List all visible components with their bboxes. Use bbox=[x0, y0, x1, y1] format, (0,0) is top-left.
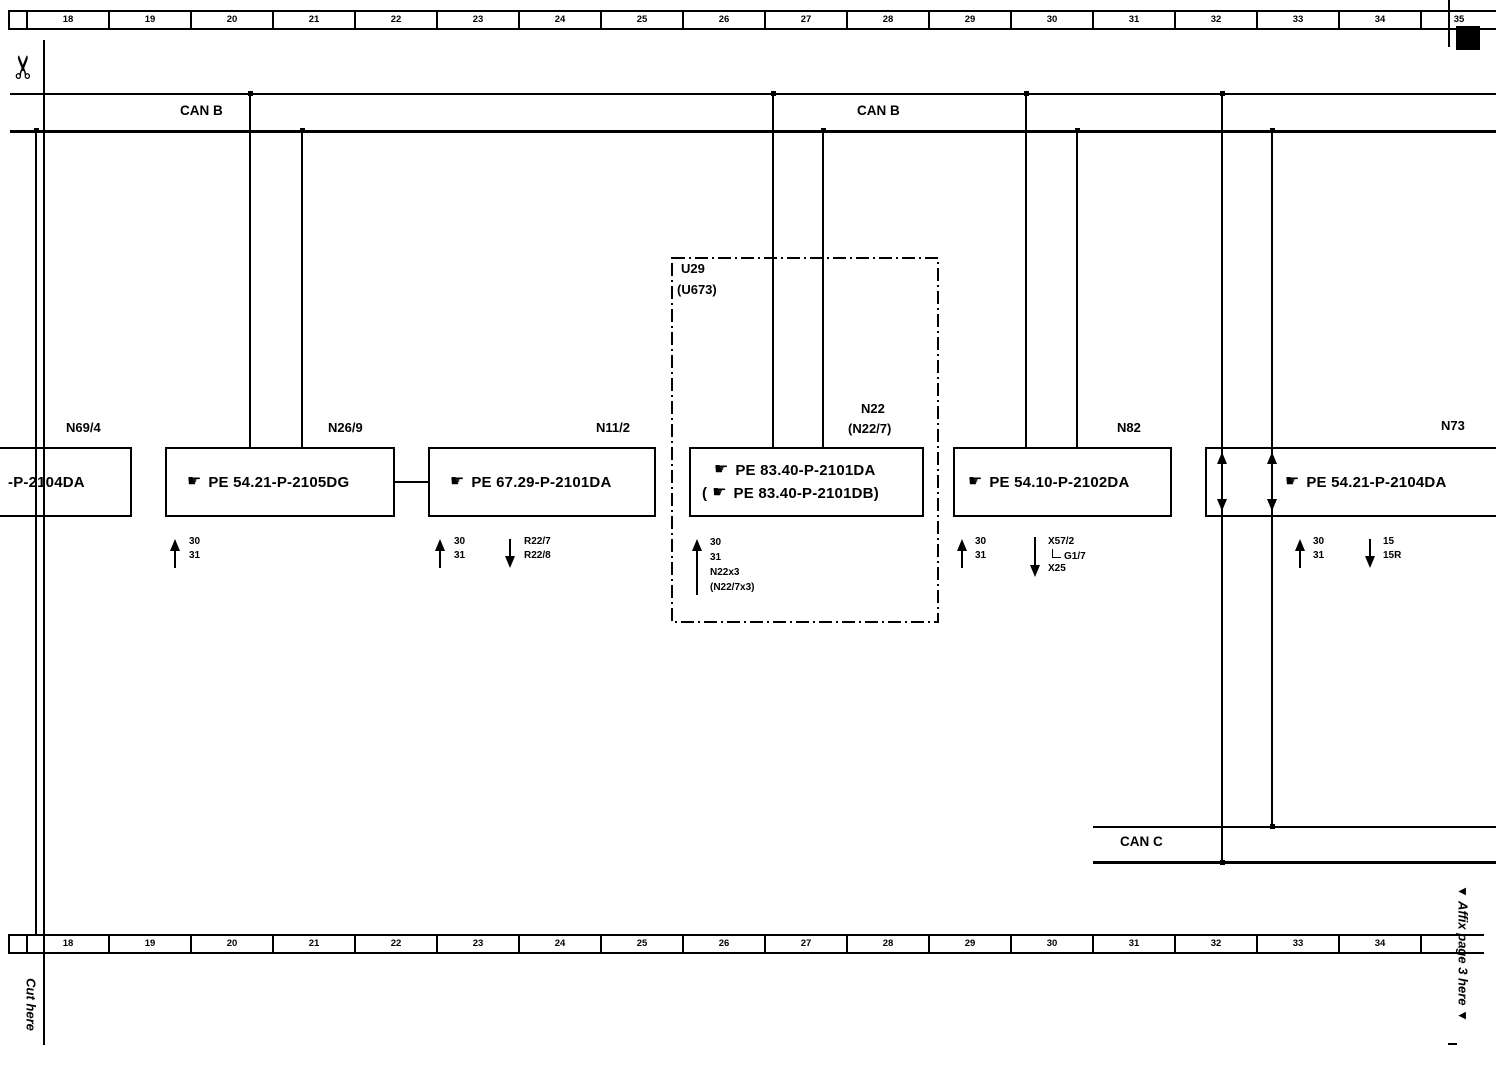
can-c-low-line bbox=[1093, 861, 1496, 864]
drop-n82-a bbox=[1025, 93, 1027, 447]
ruler-cell: 24 bbox=[518, 934, 600, 952]
cut-line bbox=[43, 40, 45, 1045]
scissors-icon: ✂ bbox=[4, 54, 42, 81]
n22-sublabel: (N22/7) bbox=[848, 421, 891, 436]
ruler-cell: 26 bbox=[682, 10, 764, 28]
ruler-cell: 19 bbox=[108, 934, 190, 952]
ruler-cell: 21 bbox=[272, 934, 354, 952]
n69-4-ref: -P-2104DA bbox=[8, 474, 85, 491]
junction-dot bbox=[771, 91, 776, 96]
drop-n26-9-b bbox=[301, 131, 303, 447]
ruler-cell: 22 bbox=[354, 10, 436, 28]
can-b-label-right: CAN B bbox=[857, 103, 900, 118]
power-arrow-shaft bbox=[696, 549, 698, 595]
n73-bus-arrow-up bbox=[1217, 452, 1227, 464]
u29-label: U29 bbox=[681, 261, 705, 276]
n73-bus-arrow-down bbox=[1267, 499, 1277, 511]
ruler-cell: 30 bbox=[1010, 10, 1092, 28]
power-labels-n82: 3031 bbox=[975, 535, 986, 563]
ruler-cell: 32 bbox=[1174, 934, 1256, 952]
hand-icon: ☛ bbox=[450, 471, 464, 491]
page-edge-mark-line bbox=[1448, 0, 1450, 47]
power-arrow-shaft bbox=[961, 549, 963, 568]
ruler-cell: 23 bbox=[436, 934, 518, 952]
ruler-cell: 18 bbox=[26, 934, 108, 952]
ruler-cell: 20 bbox=[190, 934, 272, 952]
signal-arrow-down bbox=[1030, 565, 1040, 577]
ruler-top-cells: 181920212223242526272829303132333435 bbox=[0, 10, 1496, 28]
ruler-cell: 31 bbox=[1092, 934, 1174, 952]
n11-2-ref[interactable]: PE 67.29-P-2101DA bbox=[471, 474, 611, 491]
power-arrow-shaft bbox=[1299, 549, 1301, 568]
affix-page-text: ▼ Affix page 3 here ▼ bbox=[1456, 864, 1471, 1044]
can-c-high-line bbox=[1093, 826, 1496, 828]
ruler-cell: 28 bbox=[846, 934, 928, 952]
ruler-cell: 21 bbox=[272, 10, 354, 28]
ruler-cell: 22 bbox=[354, 934, 436, 952]
bottom-right-tick bbox=[1448, 1043, 1457, 1045]
power-arrow-shaft bbox=[174, 549, 176, 568]
hand-icon: ☛ bbox=[187, 471, 201, 491]
drop-n82-b bbox=[1076, 131, 1078, 447]
n22-ref-1[interactable]: PE 83.40-P-2101DA bbox=[735, 459, 875, 482]
junction-dot bbox=[34, 128, 39, 133]
ruler-bottom-lower-line bbox=[8, 952, 1484, 954]
junction-dot bbox=[1220, 91, 1225, 96]
n73-box: ☛ PE 54.21-P-2104DA bbox=[1205, 447, 1496, 517]
n73-label: N73 bbox=[1441, 418, 1465, 433]
ruler-cell: 26 bbox=[682, 934, 764, 952]
signal-label-x57-2: X57/2 bbox=[1048, 535, 1074, 549]
can-b-high-line bbox=[10, 93, 1496, 95]
n22-box: ☛ PE 83.40-P-2101DA ( ☛ PE 83.40-P-2101D… bbox=[689, 447, 924, 517]
power-labels-n26-9: 3031 bbox=[189, 535, 200, 563]
drop-n69-4 bbox=[35, 131, 37, 935]
n73-bus-arrow-down bbox=[1217, 499, 1227, 511]
ruler-cell: 30 bbox=[1010, 934, 1092, 952]
n82-label: N82 bbox=[1117, 420, 1141, 435]
ruler-cell: 27 bbox=[764, 934, 846, 952]
power-labels-n22: 3031 N22x3(N22/7x3) bbox=[710, 535, 754, 595]
ruler-cell: 25 bbox=[600, 10, 682, 28]
ruler-top-lower-line bbox=[8, 28, 1496, 30]
ruler-cell: 24 bbox=[518, 10, 600, 28]
ruler-cell: 27 bbox=[764, 10, 846, 28]
n22-ref-2-paren: ( bbox=[702, 482, 707, 505]
cut-here-text: Cut here bbox=[24, 968, 39, 1042]
n11-2-box: ☛ PE 67.29-P-2101DA bbox=[428, 447, 656, 517]
ruler-cell: 23 bbox=[436, 10, 518, 28]
junction-dot bbox=[1270, 128, 1275, 133]
ruler-cell: 29 bbox=[928, 10, 1010, 28]
junction-dot bbox=[821, 128, 826, 133]
drop-n22-a bbox=[772, 93, 774, 447]
hand-icon: ☛ bbox=[714, 458, 728, 481]
wiring-diagram-page: 181920212223242526272829303132333435 ✂ C… bbox=[0, 0, 1496, 1072]
n69-4-box: -P-2104DA bbox=[0, 447, 132, 517]
signal-arrow-down bbox=[505, 556, 515, 568]
ruler-cell: 34 bbox=[1338, 934, 1420, 952]
n82-box: ☛ PE 54.10-P-2102DA bbox=[953, 447, 1172, 517]
n69-4-label: N69/4 bbox=[66, 420, 101, 435]
ruler-cell: 31 bbox=[1092, 10, 1174, 28]
signal-label-x25: X25 bbox=[1048, 562, 1066, 576]
n73-ref[interactable]: PE 54.21-P-2104DA bbox=[1306, 474, 1446, 491]
ruler-cell: 34 bbox=[1338, 10, 1420, 28]
junction-dot bbox=[300, 128, 305, 133]
signal-arrow-shaft bbox=[1034, 537, 1036, 567]
n26-9-ref[interactable]: PE 54.21-P-2105DG bbox=[208, 474, 349, 491]
n22-ref-2[interactable]: PE 83.40-P-2101DB) bbox=[734, 482, 879, 505]
n26-9-n11-2-connector bbox=[395, 481, 428, 483]
branch-elbow bbox=[1052, 549, 1061, 558]
drop-n26-9-a bbox=[249, 93, 251, 447]
signal-labels-n11-2: R22/7R22/8 bbox=[524, 535, 551, 563]
ruler-cell: 33 bbox=[1256, 10, 1338, 28]
n26-9-label: N26/9 bbox=[328, 420, 363, 435]
ruler-cell: 25 bbox=[600, 934, 682, 952]
page-corner-square bbox=[1456, 26, 1480, 50]
power-arrow-shaft bbox=[439, 549, 441, 568]
can-c-label: CAN C bbox=[1120, 834, 1163, 849]
ruler-cell: 33 bbox=[1256, 934, 1338, 952]
can-b-label-left: CAN B bbox=[180, 103, 223, 118]
power-labels-n73: 3031 bbox=[1313, 535, 1324, 563]
ruler-cell: 28 bbox=[846, 10, 928, 28]
ruler-cell: 19 bbox=[108, 10, 190, 28]
n73-bus-arrow-up bbox=[1267, 452, 1277, 464]
signal-labels-n73: 1515R bbox=[1383, 535, 1401, 563]
junction-dot bbox=[1075, 128, 1080, 133]
signal-label-g1-7: G1/7 bbox=[1064, 550, 1086, 564]
power-labels-n11-2: 3031 bbox=[454, 535, 465, 563]
n22-label: N22 bbox=[861, 401, 885, 416]
ruler-cell: 20 bbox=[190, 10, 272, 28]
signal-arrow-down bbox=[1365, 556, 1375, 568]
ruler-cell: 29 bbox=[928, 934, 1010, 952]
n11-2-label: N11/2 bbox=[596, 420, 630, 435]
hand-icon: ☛ bbox=[1285, 471, 1299, 491]
hand-icon: ☛ bbox=[968, 471, 982, 491]
ruler-cell: 18 bbox=[26, 10, 108, 28]
ruler-cell: 32 bbox=[1174, 10, 1256, 28]
junction-dot bbox=[248, 91, 253, 96]
u29-sublabel: (U673) bbox=[677, 282, 717, 297]
ruler-bottom-cells: 1819202122232425262728293031323334 bbox=[0, 934, 1496, 952]
n26-9-box: ☛ PE 54.21-P-2105DG bbox=[165, 447, 395, 517]
n82-ref[interactable]: PE 54.10-P-2102DA bbox=[989, 474, 1129, 491]
ruler-tick bbox=[1420, 934, 1422, 952]
drop-n22-b bbox=[822, 131, 824, 447]
hand-icon: ☛ bbox=[712, 481, 726, 504]
junction-dot bbox=[1024, 91, 1029, 96]
